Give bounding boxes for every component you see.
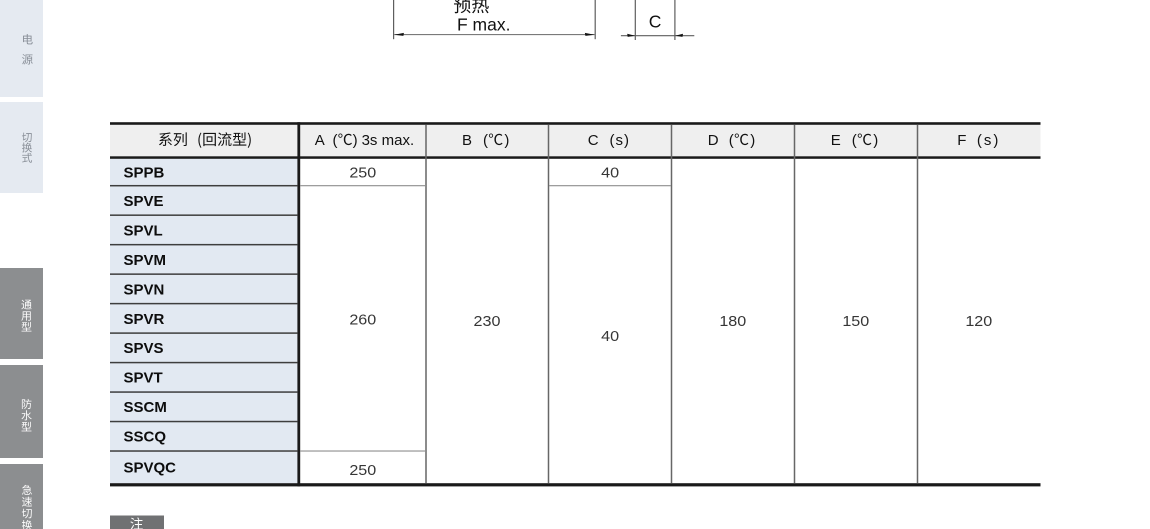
svg-text:A: A bbox=[315, 132, 325, 149]
svg-text:SSCQ: SSCQ bbox=[124, 429, 167, 446]
svg-text:): ) bbox=[750, 132, 755, 149]
svg-text:F: F bbox=[957, 132, 966, 149]
svg-text:B: B bbox=[462, 132, 472, 149]
svg-text:260: 260 bbox=[349, 313, 376, 329]
svg-text:): ) bbox=[873, 132, 878, 149]
svg-text:(: ( bbox=[483, 132, 488, 149]
svg-text:(: ( bbox=[852, 132, 857, 149]
svg-text:): ) bbox=[504, 132, 509, 149]
svg-text:SPVT: SPVT bbox=[124, 370, 163, 387]
svg-text:C: C bbox=[649, 12, 662, 32]
svg-text:SPVS: SPVS bbox=[124, 340, 164, 357]
svg-text:D: D bbox=[708, 132, 719, 149]
svg-text:SPVN: SPVN bbox=[124, 281, 165, 298]
svg-text:): ) bbox=[353, 132, 358, 149]
svg-text:(: ( bbox=[333, 132, 338, 149]
svg-text:40: 40 bbox=[601, 329, 619, 345]
svg-text:230: 230 bbox=[474, 314, 501, 330]
svg-text:40: 40 bbox=[601, 165, 619, 181]
svg-text:(s): (s) bbox=[977, 132, 1001, 149]
svg-text:150: 150 bbox=[842, 314, 869, 330]
svg-text:SPVQC: SPVQC bbox=[124, 460, 177, 477]
svg-text:(: ( bbox=[729, 132, 734, 149]
svg-text:SPVL: SPVL bbox=[124, 222, 163, 239]
svg-text:SSCM: SSCM bbox=[124, 399, 167, 416]
svg-text:SPPB: SPPB bbox=[124, 165, 165, 182]
svg-text:(s): (s) bbox=[610, 132, 631, 149]
svg-text:C: C bbox=[588, 132, 599, 149]
svg-text:SPVM: SPVM bbox=[124, 252, 167, 269]
svg-text:SPVR: SPVR bbox=[124, 311, 165, 328]
svg-text:E: E bbox=[831, 132, 841, 149]
svg-text:F max.: F max. bbox=[457, 14, 510, 34]
svg-text:3s max.: 3s max. bbox=[362, 132, 415, 149]
svg-text:250: 250 bbox=[349, 165, 376, 181]
svg-text:180: 180 bbox=[719, 314, 746, 330]
svg-text:250: 250 bbox=[349, 463, 376, 479]
svg-text:SPVE: SPVE bbox=[124, 193, 164, 210]
svg-text:120: 120 bbox=[965, 314, 992, 330]
